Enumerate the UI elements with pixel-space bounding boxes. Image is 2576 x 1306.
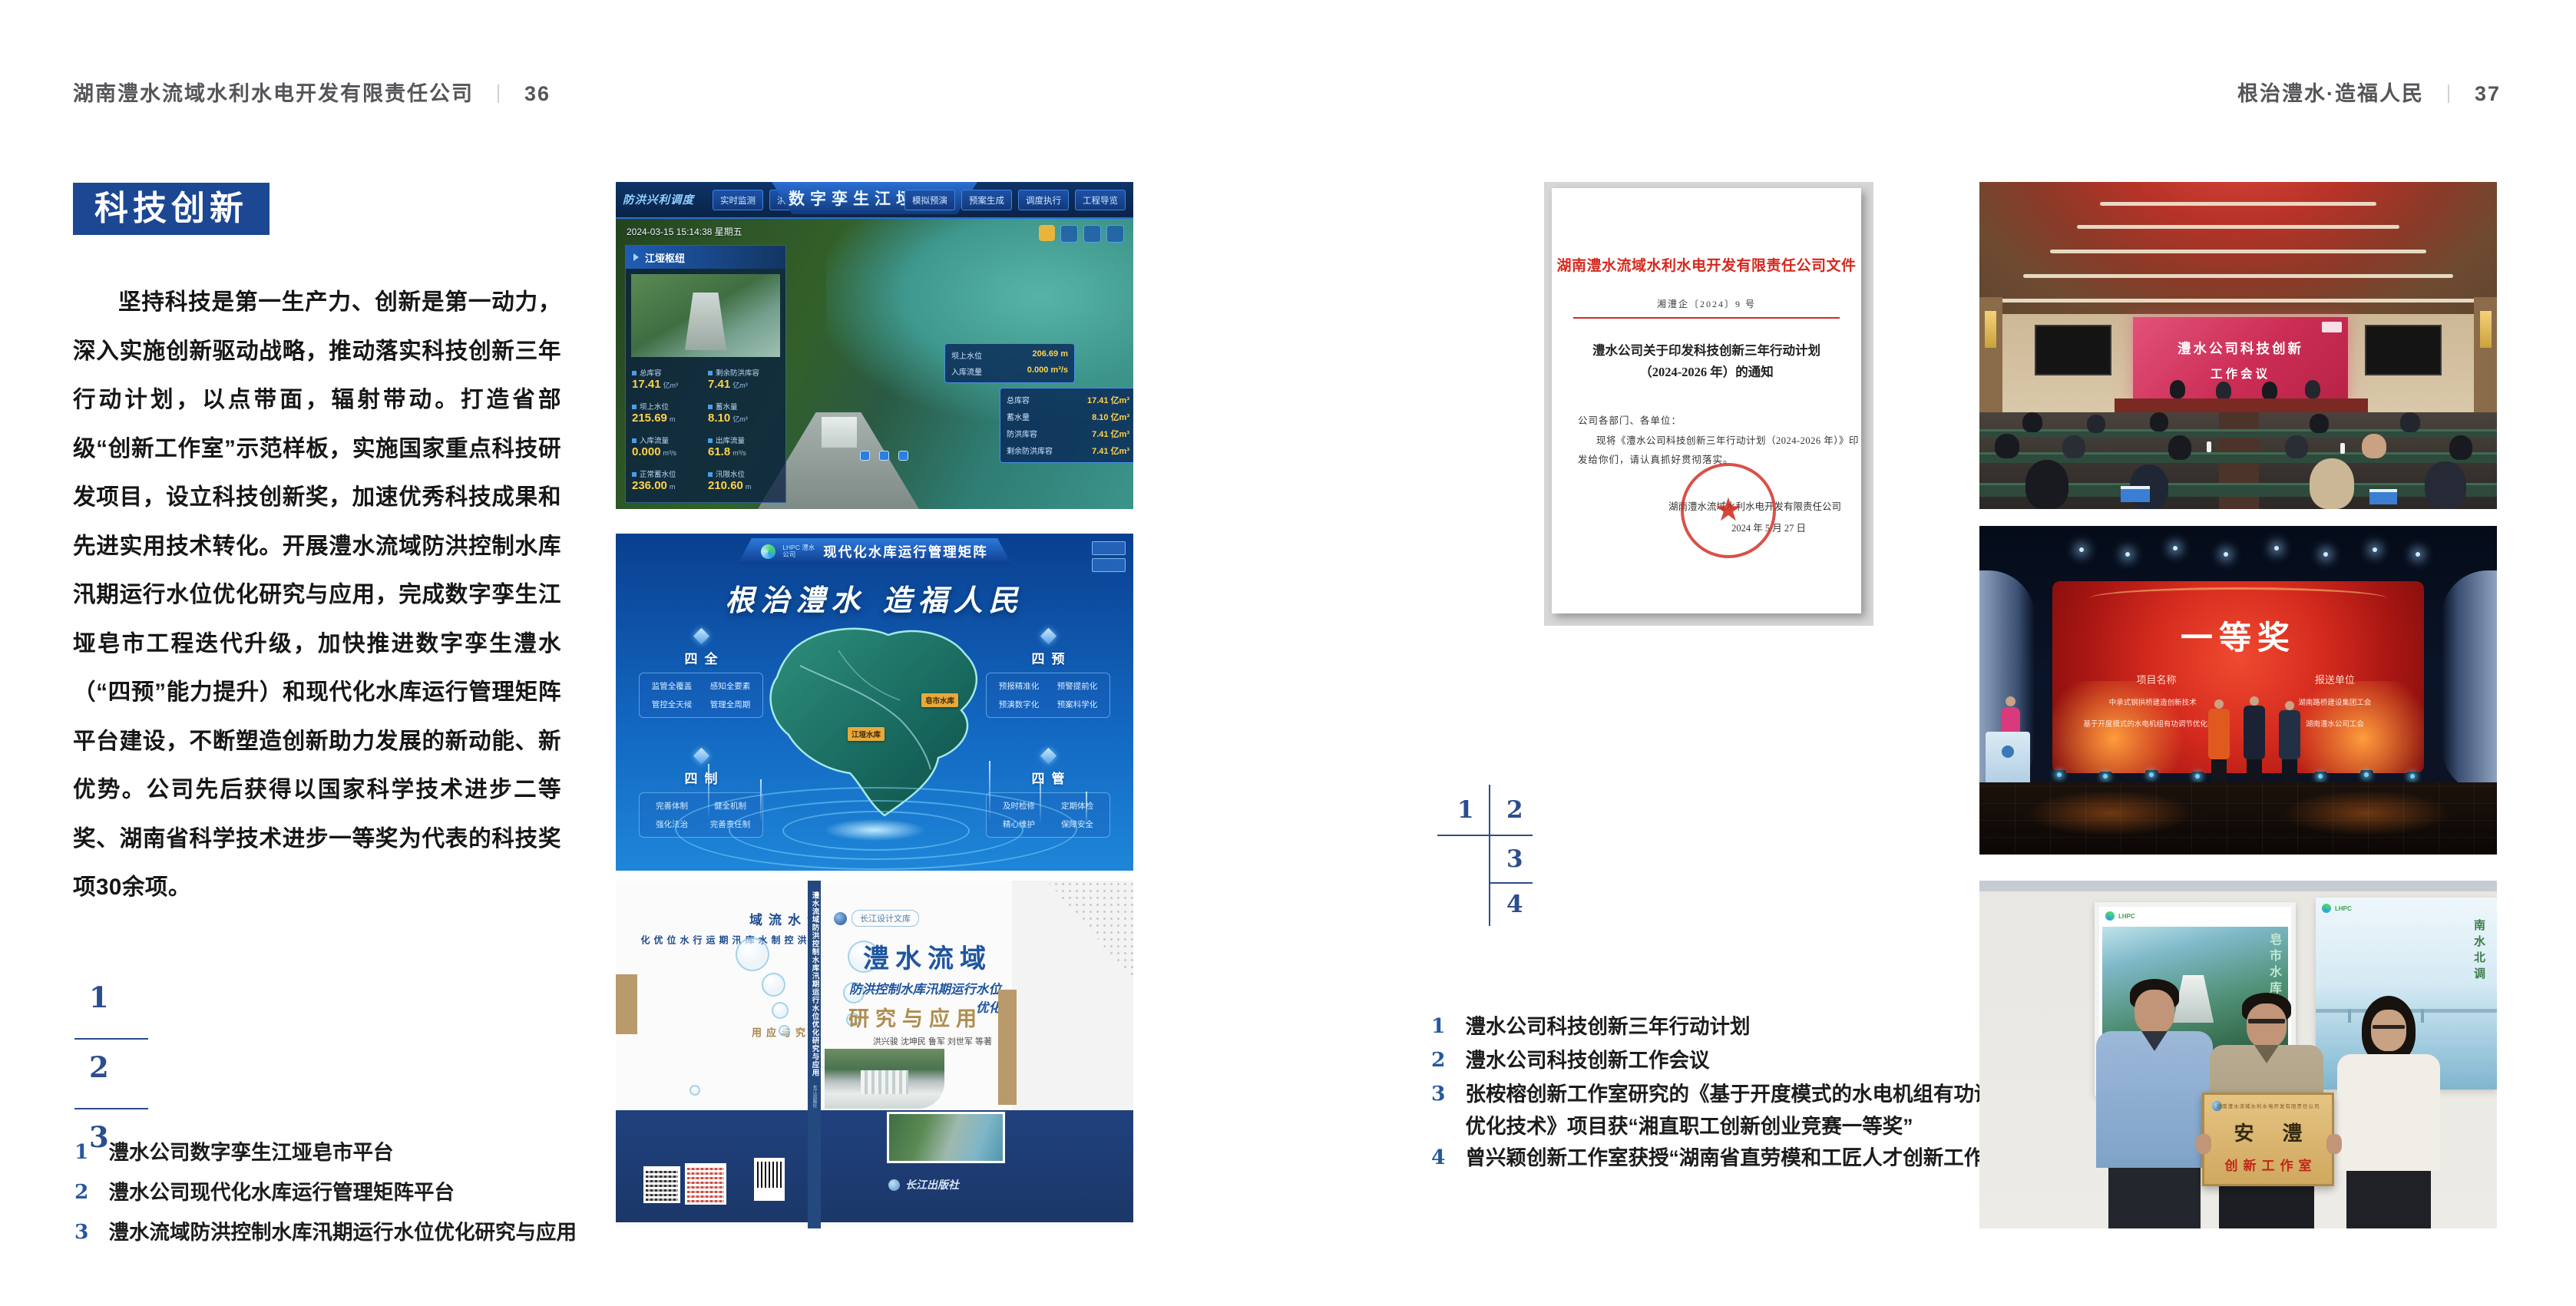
caption-right-1: 1 澧水公司科技创新三年行动计划 bbox=[1431, 1015, 1750, 1038]
stage-light bbox=[2173, 546, 2178, 551]
person-trousers bbox=[2346, 1171, 2431, 1228]
mx-slogan: 根治澧水 造福人民 bbox=[616, 577, 1133, 619]
moving-head-light bbox=[2053, 770, 2066, 779]
photo-meeting-room: 澧水公司科技创新 工作会议 bbox=[1979, 182, 2497, 509]
plaque-title: 创新工作室 bbox=[2204, 1155, 2332, 1174]
header-divider: ｜ bbox=[489, 84, 509, 105]
eyeglasses bbox=[2373, 1025, 2405, 1029]
audience-head bbox=[2400, 412, 2420, 432]
caption-left-1: 1 澧水公司数字孪生江垭皂市平台 bbox=[74, 1141, 393, 1164]
screen-logo bbox=[2322, 322, 2342, 332]
stat-item: 汛限水位210.60m bbox=[708, 468, 779, 493]
document-subject-1: 澧水公司关于印发科技创新三年行动计划 bbox=[1552, 340, 1861, 359]
stat-item: 出库流量61.8m³/s bbox=[708, 435, 779, 459]
speaker-silhouette bbox=[2216, 382, 2231, 400]
award-col-project: 项目名称 bbox=[2082, 672, 2231, 686]
document-body-2: 发给你们，请认真抓好贯彻落实。 bbox=[1578, 451, 1734, 466]
barcode-card bbox=[754, 1158, 785, 1201]
person-face bbox=[2247, 1003, 2287, 1048]
wall-lamp bbox=[2480, 311, 2492, 348]
speaker-silhouette bbox=[2262, 382, 2277, 400]
speaker-silhouette bbox=[2305, 380, 2320, 398]
poster-logo: LHPC bbox=[2105, 911, 2135, 921]
document-number: 湘澧企〔2024〕9 号 bbox=[1552, 297, 1861, 310]
moving-head-light bbox=[2406, 772, 2419, 781]
marker-grid-vline bbox=[1489, 785, 1490, 926]
caption-number: 1 bbox=[1431, 1015, 1445, 1038]
marker-divider bbox=[74, 1038, 148, 1040]
caption-text: 澧水公司科技创新工作会议 bbox=[1465, 1049, 1709, 1072]
locate-tool-icon[interactable] bbox=[1083, 225, 1101, 243]
person-trousers bbox=[2108, 1168, 2201, 1228]
recipient-dark-suit bbox=[2244, 706, 2265, 759]
light-strip bbox=[1996, 299, 2480, 303]
light-strip bbox=[2100, 202, 2376, 206]
polo-collar bbox=[2141, 1031, 2168, 1051]
front-dam-photo bbox=[825, 1049, 944, 1109]
audience-head bbox=[2362, 434, 2386, 458]
mx-group-siquan: 四全 监管全覆盖感知全要素 管控全天候管理全周期 bbox=[639, 630, 763, 718]
wall-tv bbox=[2365, 325, 2442, 375]
stage-light bbox=[2224, 552, 2228, 557]
diamond-icon bbox=[693, 748, 709, 764]
caption-number: 3 bbox=[74, 1221, 88, 1244]
map-label-jiangya: 江垭水库 bbox=[848, 727, 885, 741]
light-pin bbox=[760, 779, 762, 822]
person-tshirt-white bbox=[2337, 1054, 2440, 1171]
person-face bbox=[2371, 1010, 2406, 1051]
award-row-unit: 湖南路桥建设集团工会 bbox=[2260, 696, 2409, 707]
stage-light bbox=[2323, 552, 2328, 557]
figure-marker-1: 1 bbox=[1457, 798, 1474, 822]
caption-text: 澧水公司现代化水库运行管理矩阵平台 bbox=[108, 1181, 455, 1204]
stage-light bbox=[2079, 547, 2084, 552]
caption-left-2: 2 澧水公司现代化水库运行管理矩阵平台 bbox=[74, 1181, 455, 1204]
front-title-main: 澧水流域 bbox=[846, 937, 992, 975]
audience-head bbox=[1995, 434, 2019, 458]
recipient-head bbox=[2250, 696, 2259, 706]
water-bubble bbox=[689, 1085, 700, 1096]
caption-number: 1 bbox=[74, 1141, 88, 1164]
figure-matrix-platform: LHPC 澧水公司 现代化水库运行管理矩阵 根治澧水 造福人民 皂市水库 江垭水… bbox=[616, 534, 1133, 871]
bridge-pier bbox=[2348, 1009, 2351, 1023]
lhpc-logo-icon bbox=[761, 544, 775, 559]
stage-light bbox=[2373, 547, 2377, 552]
back-cover-title: 澧水流域 防洪控制水库汛期运行水位优化 研究与应用 bbox=[639, 913, 822, 1040]
official-seal: ★ bbox=[1681, 463, 1776, 558]
dt-tab-dispatch[interactable]: 调度执行 bbox=[1018, 190, 1069, 210]
water-bubble bbox=[779, 1025, 790, 1037]
moving-head-light bbox=[2360, 770, 2373, 779]
wall-lamp bbox=[1985, 311, 1996, 348]
dt-tab-realtime[interactable]: 实时监测 bbox=[713, 190, 763, 210]
diamond-icon bbox=[693, 628, 709, 644]
speaker-silhouette bbox=[2170, 380, 2185, 398]
qr-code bbox=[685, 1163, 726, 1205]
stat-item: 总库容17.41亿m³ bbox=[632, 367, 703, 392]
book-slogan: 根治澧水·造福人民 bbox=[2237, 82, 2424, 105]
book-spine: 澧水流域防洪控制水库汛期运行水位优化研究与应用 长江出版社 bbox=[808, 881, 821, 1228]
poster-logo: LHPC bbox=[2322, 904, 2352, 913]
authors-line: 洪兴骏 沈坤民 鲁军 刘世军 等著 bbox=[831, 1035, 992, 1047]
dt-tabs-right: 模拟预演 预案生成 调度执行 工程导览 bbox=[904, 190, 1126, 210]
podium-logo bbox=[2002, 746, 2014, 758]
award-col-unit: 报送单位 bbox=[2268, 672, 2402, 686]
tissue-box bbox=[2121, 486, 2150, 502]
caption-left-3: 3 澧水流域防洪控制水库汛期运行水位优化研究与应用 bbox=[74, 1221, 577, 1244]
photo-plaque-group: LHPC 皂市水库 LHPC 南水北调 bbox=[1979, 881, 2497, 1228]
water-bottle bbox=[2340, 443, 2345, 454]
spine-title: 澧水流域防洪控制水库汛期运行水位优化研究与应用 bbox=[809, 891, 820, 1077]
diamond-icon bbox=[1040, 628, 1056, 644]
caption-right-2: 2 澧水公司科技创新工作会议 bbox=[1431, 1049, 1709, 1072]
photo-award-ceremony: 一等奖 项目名称 报送单位 中承式钢拱桥建造创新技术 湖南路桥建设集团工会 基于… bbox=[1979, 526, 2497, 855]
back-tan-block bbox=[616, 974, 637, 1034]
layers-tool-icon[interactable] bbox=[1060, 225, 1078, 243]
spine-publisher: 长江出版社 bbox=[811, 1085, 818, 1108]
mx-button-top[interactable] bbox=[1092, 541, 1126, 555]
lhpc-logo-icon bbox=[2105, 911, 2115, 921]
stat-item: 坝上水位215.69m bbox=[632, 401, 703, 425]
document-page: 湖南澧水流域水利水电开发有限责任公司文件 湘澧企〔2024〕9 号 澧水公司关于… bbox=[1552, 188, 1861, 613]
audience-head bbox=[2087, 415, 2105, 433]
marker-divider bbox=[1437, 835, 1533, 836]
book-spread: 湖南澧水流域水利水电开发有限责任公司｜36 科技创新 坚持科技是第一生产力、创新… bbox=[0, 0, 2576, 1306]
polo-collar bbox=[2254, 1045, 2279, 1063]
recipient-navy-jacket bbox=[2279, 710, 2300, 759]
stage-light bbox=[2125, 552, 2130, 557]
award-title: 一等奖 bbox=[2052, 612, 2424, 659]
audience-head bbox=[2022, 412, 2042, 432]
stage-light bbox=[2416, 552, 2420, 557]
header-divider: ｜ bbox=[2439, 84, 2459, 105]
dt-timestamp: 2024-03-15 15:14:38 星期五 bbox=[627, 225, 742, 238]
caption-number: 3 bbox=[1431, 1083, 1445, 1139]
bridge-pier bbox=[2421, 1009, 2424, 1023]
map-pin-icon[interactable] bbox=[898, 451, 908, 461]
caption-right-3: 3 张桉榕创新工作室研究的《基于开度模式的水电机组有功调节 优化技术》项目获“湘… bbox=[1431, 1083, 2015, 1139]
front-tan-block bbox=[998, 990, 1017, 1105]
light-strip bbox=[2050, 250, 2426, 253]
document-title: 湖南澧水流域水利水电开发有限责任公司文件 bbox=[1552, 254, 1861, 275]
light-strip bbox=[2077, 225, 2399, 229]
light-pin bbox=[989, 761, 990, 822]
hand bbox=[2196, 1134, 2211, 1154]
dt-nav-bar: 防洪兴利调度 实时监测 洪水预报 防汛预警 数字孪生江垭皂市 模拟预演 预案生成… bbox=[616, 182, 1133, 219]
light-pin bbox=[708, 764, 709, 819]
caption-number: 4 bbox=[1431, 1146, 1445, 1169]
led-screen: 一等奖 项目名称 报送单位 中承式钢拱桥建造创新技术 湖南路桥建设集团工会 基于… bbox=[2052, 581, 2424, 773]
audience-head bbox=[2449, 435, 2472, 460]
front-dam-photo-2 bbox=[887, 1112, 1005, 1163]
series-badge: 长江设计文库 bbox=[834, 910, 919, 927]
mx-button-bottom[interactable] bbox=[1092, 558, 1126, 572]
diamond-icon bbox=[1040, 748, 1056, 764]
document-body-1: 现将《澧水公司科技创新三年行动计划（2024-2026 年）》印 bbox=[1596, 432, 1859, 447]
ripple-core bbox=[825, 819, 924, 841]
water-bubble bbox=[772, 1002, 789, 1019]
dt-nav-group-label: 防洪兴利调度 bbox=[623, 191, 694, 207]
stage-floor bbox=[1979, 782, 2497, 855]
moving-head-light bbox=[2191, 772, 2204, 781]
audience-head bbox=[2150, 412, 2168, 431]
dt-corner-tools bbox=[1039, 225, 1124, 243]
marker-divider bbox=[1489, 882, 1533, 884]
changjiang-press-icon bbox=[888, 1179, 900, 1191]
mx-logo-text: LHPC 澧水公司 bbox=[782, 544, 816, 559]
mx-title: 现代化水库运行管理矩阵 bbox=[823, 542, 988, 561]
panel-arrow-icon bbox=[633, 253, 639, 261]
caption-text: 澧水公司数字孪生江垭皂市平台 bbox=[108, 1141, 393, 1164]
audience-head bbox=[2062, 435, 2085, 458]
settings-tool-icon[interactable] bbox=[1106, 225, 1124, 243]
dt-panel-thumbnail bbox=[631, 274, 780, 357]
stat-item: 蓄水量8.10亿m³ bbox=[708, 401, 779, 425]
stat-item: 入库流量0.000m³/s bbox=[632, 435, 703, 459]
recipient-head bbox=[2285, 701, 2294, 710]
dt-map-pins bbox=[860, 451, 908, 461]
caption-text: 曾兴颖创新工作室获授“湖南省直劳模和工匠人才创新工作室” bbox=[1465, 1146, 2015, 1169]
lhpc-logo-icon bbox=[2322, 904, 2331, 913]
dt-station-panel: 江垭枢纽 总库容17.41亿m³ 剩余防洪库容7.41亿m³ 坝上水位215.6… bbox=[625, 245, 786, 503]
page-number-left: 36 bbox=[524, 82, 551, 105]
poster-left-calligraphy: 皂市水库 bbox=[2265, 933, 2283, 997]
company-name: 湖南澧水流域水利水电开发有限责任公司 bbox=[73, 82, 474, 105]
desk-row bbox=[1979, 429, 2497, 438]
dt-stats-grid: 总库容17.41亿m³ 剩余防洪库容7.41亿m³ 坝上水位215.69m 蓄水… bbox=[626, 362, 785, 502]
figure-marker-2: 2 bbox=[89, 1053, 109, 1082]
screen-title-line2: 工作会议 bbox=[2133, 365, 2348, 382]
qr-code bbox=[643, 1166, 680, 1203]
thumbnail-dam bbox=[685, 293, 726, 351]
caption-text: 澧水流域防洪控制水库汛期运行水位优化研究与应用 bbox=[108, 1221, 577, 1244]
publisher-mark: 长江出版社 bbox=[888, 1177, 959, 1192]
dam-spill-texture bbox=[861, 1070, 908, 1094]
moving-head-light bbox=[2099, 772, 2112, 781]
recipient-head bbox=[2214, 699, 2224, 709]
audience-head bbox=[2168, 435, 2191, 460]
publisher-logo-icon bbox=[834, 912, 847, 925]
poster-right-calligraphy: 南水北调 bbox=[2472, 919, 2488, 984]
floor-grid bbox=[1979, 782, 2497, 855]
mx-group-siyu: 四预 预报精准化预警提前化 预演数字化预案科学化 bbox=[986, 630, 1110, 718]
tissue-box bbox=[2369, 489, 2397, 504]
dt-panel-header: 江垭枢纽 bbox=[626, 246, 785, 269]
audience-head bbox=[2025, 460, 2068, 509]
audience-head bbox=[2310, 458, 2354, 509]
dt-panel-title: 江垭枢纽 bbox=[645, 250, 685, 265]
moving-head-light bbox=[2314, 772, 2327, 781]
light-pin bbox=[1040, 778, 1041, 824]
dt-tab-tour[interactable]: 工程导览 bbox=[1075, 190, 1126, 210]
moving-head-light bbox=[2145, 770, 2158, 779]
stage-side-panel bbox=[2442, 570, 2497, 793]
water-bottle bbox=[2207, 441, 2211, 452]
document-salutation: 公司各部门、各单位： bbox=[1578, 412, 1682, 427]
award-row-project: 中承式钢拱桥建造创新技术 bbox=[2067, 696, 2238, 707]
map-pin-icon[interactable] bbox=[879, 451, 889, 461]
figure-official-document: 湖南澧水流域水利水电开发有限责任公司文件 湘澧企〔2024〕9 号 澧水公司关于… bbox=[1544, 182, 1873, 626]
document-subject-2: （2024-2026 年）的通知 bbox=[1552, 362, 1861, 380]
plaque-header: 湖南澧水流域水利水电开发有限责任公司 bbox=[2204, 1102, 2332, 1109]
alert-tool-icon[interactable] bbox=[1039, 225, 1055, 241]
screen-arc-decoration bbox=[2089, 587, 2386, 610]
hand bbox=[2326, 1134, 2342, 1154]
dt-popup-capacity: 总库容17.41 亿m³ 蓄水量8.10 亿m³ 防洪库容7.41 亿m³ 剩余… bbox=[1000, 388, 1133, 463]
stat-item: 剩余防洪库容7.41亿m³ bbox=[708, 367, 779, 392]
audience-head bbox=[2310, 414, 2329, 433]
document-red-rule bbox=[1573, 317, 1840, 319]
ceiling-strip bbox=[1979, 881, 2497, 891]
marker-divider bbox=[74, 1108, 148, 1109]
wall-tv bbox=[2035, 325, 2111, 375]
figure-marker-3: 3 bbox=[1506, 848, 1523, 871]
innovation-studio-plaque: 湖南澧水流域水利水电开发有限责任公司 安 澧 创新工作室 bbox=[2202, 1093, 2334, 1186]
stage-light bbox=[2274, 546, 2279, 551]
body-paragraph: 坚持科技是第一生产力、创新是第一动力，深入实施创新驱动战略，推动落实科技创新三年… bbox=[73, 278, 561, 912]
barcode bbox=[757, 1162, 782, 1188]
figure-marker-4: 4 bbox=[1506, 893, 1523, 917]
dt-tab-simulation[interactable]: 模拟预演 bbox=[904, 190, 955, 210]
person-face bbox=[2135, 990, 2174, 1034]
publisher-name: 长江出版社 bbox=[905, 1177, 959, 1192]
light-pin bbox=[1086, 792, 1087, 828]
caption-text: 张桉榕创新工作室研究的《基于开度模式的水电机组有功调节 优化技术》项目获“湘直职… bbox=[1465, 1083, 2015, 1139]
recipient-orange-jacket bbox=[2208, 709, 2230, 759]
light-strip bbox=[2023, 274, 2453, 278]
dt-popup-water-level: 坝上水位206.69 m 入库流量0.000 m³/s bbox=[944, 343, 1075, 383]
map-pin-icon[interactable] bbox=[860, 451, 870, 461]
front-title-tail: 研究与应用 bbox=[843, 1002, 983, 1032]
desk-row bbox=[1979, 452, 2497, 463]
host-head bbox=[2006, 696, 2015, 706]
page-number-right: 37 bbox=[2475, 82, 2501, 105]
caption-number: 2 bbox=[1431, 1049, 1445, 1072]
mx-header-plate: LHPC 澧水公司 现代化水库运行管理矩阵 bbox=[738, 538, 1011, 564]
dt-tab-plan[interactable]: 预案生成 bbox=[961, 190, 1012, 210]
seal-star-icon: ★ bbox=[1714, 494, 1743, 527]
audience-head bbox=[2425, 461, 2466, 509]
figure-marker-2: 2 bbox=[1506, 798, 1523, 822]
section-badge: 科技创新 bbox=[73, 183, 270, 235]
dam-spillway bbox=[822, 417, 857, 448]
map-label-zaoshi: 皂市水库 bbox=[921, 693, 958, 707]
eyeglasses bbox=[2248, 1019, 2285, 1023]
screen-title-line1: 澧水公司科技创新 bbox=[2133, 339, 2348, 358]
caption-right-4: 4 曾兴颖创新工作室获授“湖南省直劳模和工匠人才创新工作室” bbox=[1431, 1146, 2015, 1169]
left-page-header: 湖南澧水流域水利水电开发有限责任公司｜36 bbox=[73, 77, 551, 107]
plaque-name: 安 澧 bbox=[2204, 1118, 2332, 1146]
figure-marker-1: 1 bbox=[89, 984, 109, 1012]
water-bubble bbox=[736, 937, 769, 971]
water-bubble bbox=[762, 973, 785, 997]
figure-book-cover: 澧水流域 防洪控制水库汛期运行水位优化 研究与应用 澧水流域防洪控制水库汛期运行… bbox=[616, 881, 1133, 1228]
caption-number: 2 bbox=[74, 1181, 88, 1204]
right-page-header: 根治澧水·造福人民｜37 bbox=[2237, 77, 2501, 107]
caption-text: 澧水公司科技创新三年行动计划 bbox=[1465, 1015, 1750, 1038]
figure-digital-twin-platform: 防洪兴利调度 实时监测 洪水预报 防汛预警 数字孪生江垭皂市 模拟预演 预案生成… bbox=[616, 182, 1133, 509]
audience-head bbox=[2285, 435, 2308, 458]
stat-item: 正常蓄水位236.00m bbox=[632, 468, 703, 493]
